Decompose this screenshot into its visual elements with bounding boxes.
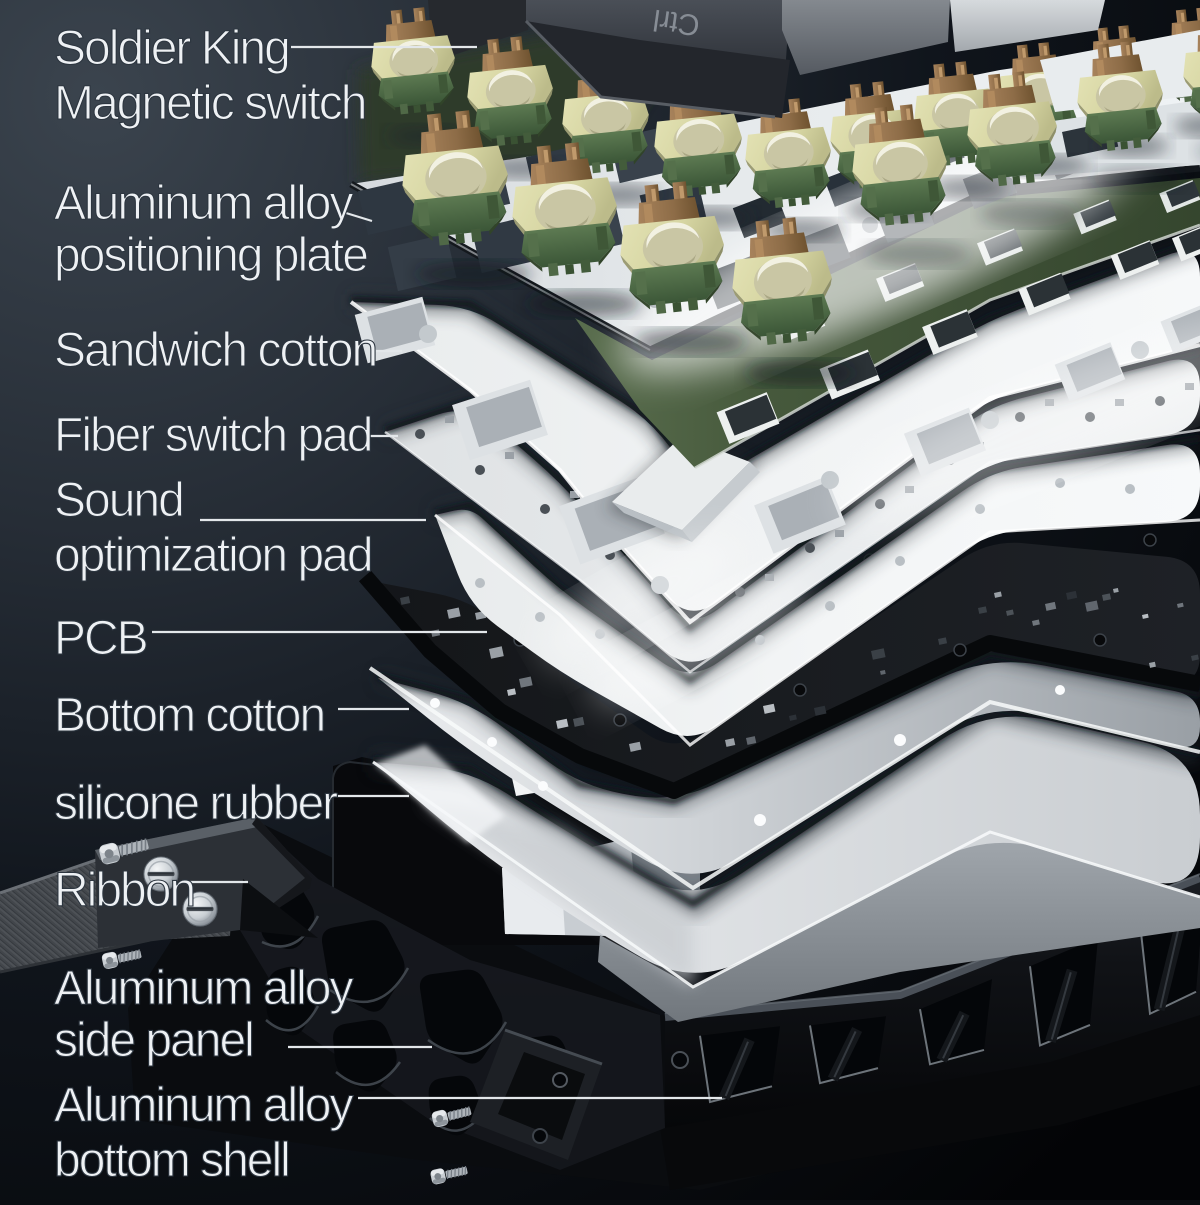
svg-text:Soldier King: Soldier King bbox=[54, 22, 289, 75]
svg-text:positioning plate: positioning plate bbox=[54, 229, 367, 282]
svg-text:side panel: side panel bbox=[54, 1014, 253, 1067]
svg-text:Sound: Sound bbox=[54, 474, 183, 527]
svg-text:Sandwich cotton: Sandwich cotton bbox=[54, 324, 376, 377]
svg-text:Ctrl: Ctrl bbox=[651, 3, 702, 42]
svg-text:Aluminum alloy: Aluminum alloy bbox=[54, 962, 353, 1015]
svg-text:Aluminum alloy: Aluminum alloy bbox=[54, 177, 353, 230]
svg-text:PCB: PCB bbox=[54, 612, 147, 665]
svg-text:Fiber switch pad: Fiber switch pad bbox=[54, 409, 371, 462]
svg-text:Bottom cotton: Bottom cotton bbox=[54, 689, 324, 742]
svg-text:Aluminum alloy: Aluminum alloy bbox=[54, 1079, 353, 1132]
svg-text:silicone rubber: silicone rubber bbox=[54, 777, 338, 830]
svg-text:optimization pad: optimization pad bbox=[54, 529, 372, 582]
svg-text:Ribbon: Ribbon bbox=[54, 864, 194, 917]
svg-text:bottom shell: bottom shell bbox=[54, 1134, 289, 1187]
svg-text:Magnetic switch: Magnetic switch bbox=[54, 77, 365, 130]
